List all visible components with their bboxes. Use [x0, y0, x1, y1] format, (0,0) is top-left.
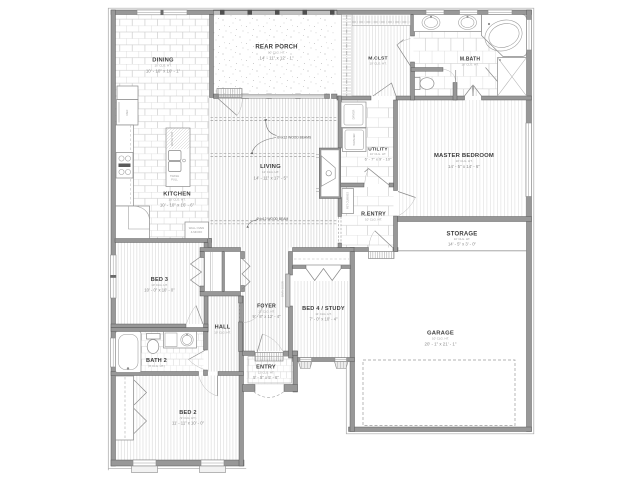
- svg-text:10' CLG. HT.: 10' CLG. HT.: [369, 62, 386, 66]
- svg-text:9' - 8" x 12' - 4": 9' - 8" x 12' - 4": [252, 314, 281, 319]
- svg-text:14' - 5" x 14' - 6": 14' - 5" x 14' - 6": [448, 164, 480, 169]
- svg-text:14' - 11" x 17' - 5": 14' - 11" x 17' - 5": [254, 176, 288, 181]
- svg-text:12' CLG. HT.: 12' CLG. HT.: [262, 170, 279, 174]
- svg-text:10' CLG. HT.: 10' CLG. HT.: [268, 51, 285, 55]
- svg-text:10' CLG. HT.: 10' CLG. HT.: [154, 64, 171, 68]
- svg-text:6' - 7" x 9' - 10": 6' - 7" x 9' - 10": [365, 157, 392, 162]
- svg-text:7' - 0" x 10' - 4": 7' - 0" x 10' - 4": [309, 317, 338, 322]
- svg-text:& MICRO: & MICRO: [191, 230, 203, 234]
- svg-text:WASHER: WASHER: [352, 133, 356, 145]
- svg-text:11' CLG. HT.: 11' CLG. HT.: [315, 312, 331, 316]
- svg-text:(9' CLG. HT.): (9' CLG. HT.): [148, 364, 165, 368]
- svg-text:12' CLG. HT.: 12' CLG. HT.: [258, 370, 275, 374]
- svg-text:DRYER: DRYER: [352, 110, 356, 120]
- svg-text:10' CLG. HT.: 10' CLG. HT.: [365, 218, 382, 222]
- svg-text:12' CLG. HT.: 12' CLG. HT.: [258, 309, 275, 313]
- svg-text:PET CUBBIES: PET CUBBIES: [346, 192, 350, 209]
- svg-text:10' - 10" x 16' - 6": 10' - 10" x 16' - 6": [160, 203, 195, 208]
- svg-text:10' CLG. HT.: 10' CLG. HT.: [214, 330, 231, 334]
- svg-text:10' - 0" x 10' - 0": 10' - 0" x 10' - 0": [144, 288, 175, 293]
- svg-text:WALL OVEN: WALL OVEN: [189, 226, 205, 230]
- svg-text:10' - 10" x 10' - 1": 10' - 10" x 10' - 1": [146, 69, 181, 74]
- svg-text:6½x12 WOOD BEAMS: 6½x12 WOOD BEAMS: [277, 135, 312, 139]
- svg-text:(9' CLG. HT.): (9' CLG. HT.): [180, 416, 197, 420]
- svg-text:11' - 11" x 10' - 0": 11' - 11" x 10' - 0": [172, 421, 205, 426]
- svg-text:10' CLG. HT.: 10' CLG. HT.: [370, 152, 387, 156]
- svg-text:10' CLG. HT.: 10' CLG. HT.: [151, 283, 168, 287]
- svg-text:10' CLG. HT.: 10' CLG. HT.: [455, 159, 472, 163]
- svg-text:WASH TUB: WASH TUB: [170, 132, 174, 146]
- svg-text:10' CLG. HT.: 10' CLG. HT.: [432, 337, 449, 341]
- svg-text:14' - 11" x 12' - 1": 14' - 11" x 12' - 1": [260, 56, 294, 61]
- svg-text:REF: REF: [125, 109, 129, 115]
- svg-text:20' - 1" x 21' - 1": 20' - 1" x 21' - 1": [425, 342, 457, 347]
- svg-text:5' - 5" x 5' - 6": 5' - 5" x 5' - 6": [253, 375, 279, 380]
- svg-text:6½x12 WOOD BEAM: 6½x12 WOOD BEAM: [257, 217, 289, 221]
- svg-text:PULL: PULL: [171, 178, 178, 182]
- svg-text:10' CLG. HT.: 10' CLG. HT.: [461, 63, 478, 67]
- svg-text:10' CLG. HT.: 10' CLG. HT.: [454, 237, 471, 241]
- svg-text:10' CLG. HT.: 10' CLG. HT.: [168, 198, 185, 202]
- svg-text:TRASH: TRASH: [170, 174, 179, 178]
- svg-text:14' - 5" x 3' - 0": 14' - 5" x 3' - 0": [448, 242, 477, 247]
- svg-text:BARN DOOR: BARN DOOR: [281, 281, 285, 297]
